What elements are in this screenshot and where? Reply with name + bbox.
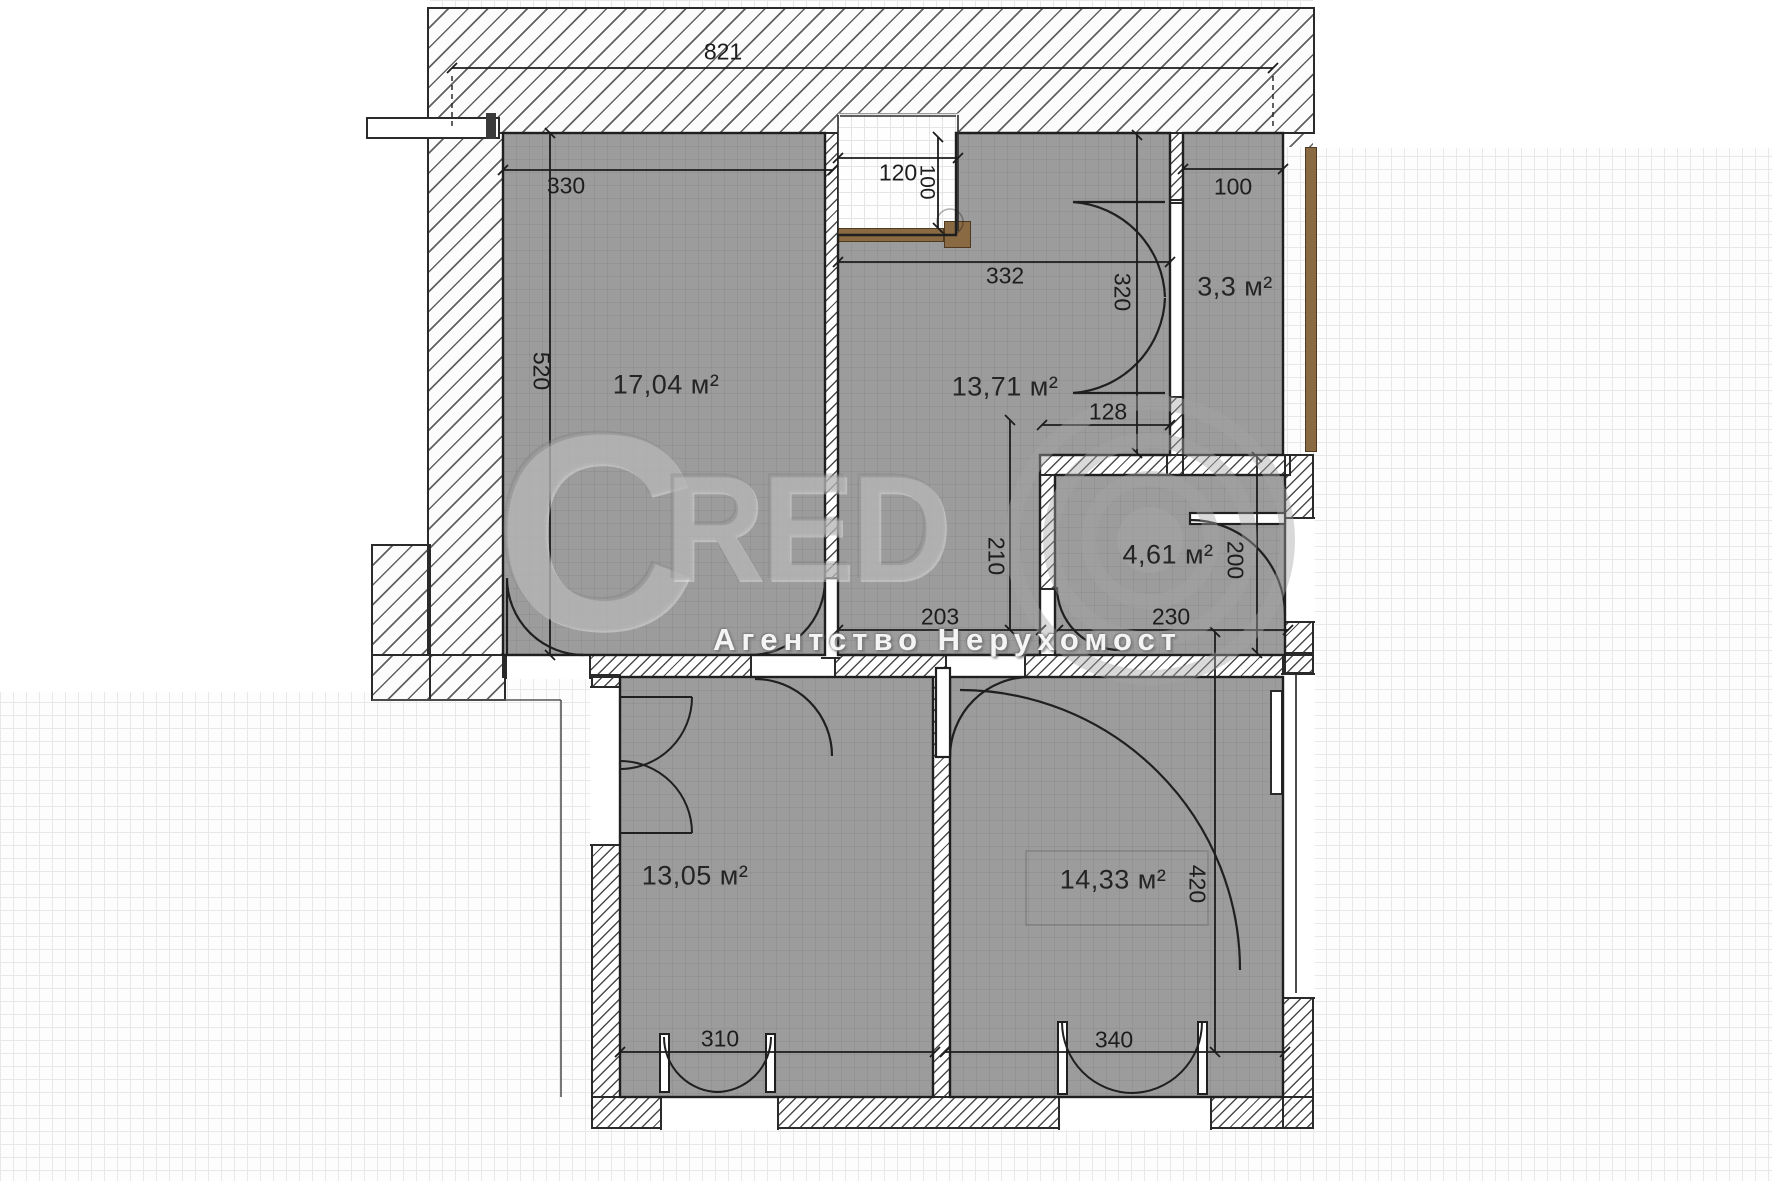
dim-label-bedroom2-height: 420	[1186, 865, 1209, 903]
room-area-label-hall: 13,71 м²	[952, 374, 1059, 401]
dim-label-entry-niche-width: 120	[879, 162, 917, 185]
dim-label-hall-lower-depth: 210	[985, 537, 1008, 575]
watermark-letters-red: RED	[663, 468, 947, 590]
room-area-label-bedroom1: 13,05 м²	[642, 863, 749, 890]
dim-label-living-width: 330	[547, 175, 585, 198]
dim-label-entry-niche-depth: 100	[917, 164, 938, 199]
dim-label-hall-width: 332	[986, 265, 1024, 288]
dim-label-bath-width: 230	[1152, 606, 1190, 629]
room-area-label-storage: 3,3 м²	[1197, 274, 1273, 301]
dim-label-overall-width: 821	[704, 41, 742, 64]
dim-label-bath-door-height: 200	[1224, 541, 1247, 579]
floor-plan-screenshot: { "rooms": { "living": "17,04 м²", "hall…	[0, 0, 1772, 1181]
dim-label-storage-door-height: 320	[1111, 273, 1134, 311]
dim-label-hall-lower-width: 203	[921, 606, 959, 629]
dim-label-bedroom2-window: 340	[1095, 1029, 1133, 1052]
dim-label-storage-width: 100	[1214, 176, 1252, 199]
room-area-label-bath: 4,61 м²	[1122, 542, 1213, 569]
dimension-guides	[452, 76, 1273, 130]
room-area-label-living: 17,04 м²	[613, 372, 720, 399]
dim-label-bath-pass-width: 128	[1089, 401, 1127, 424]
dim-label-bedroom1-window: 310	[701, 1028, 739, 1051]
dim-label-living-height: 520	[530, 352, 553, 390]
room-area-label-bedroom2: 14,33 м²	[1060, 867, 1167, 894]
